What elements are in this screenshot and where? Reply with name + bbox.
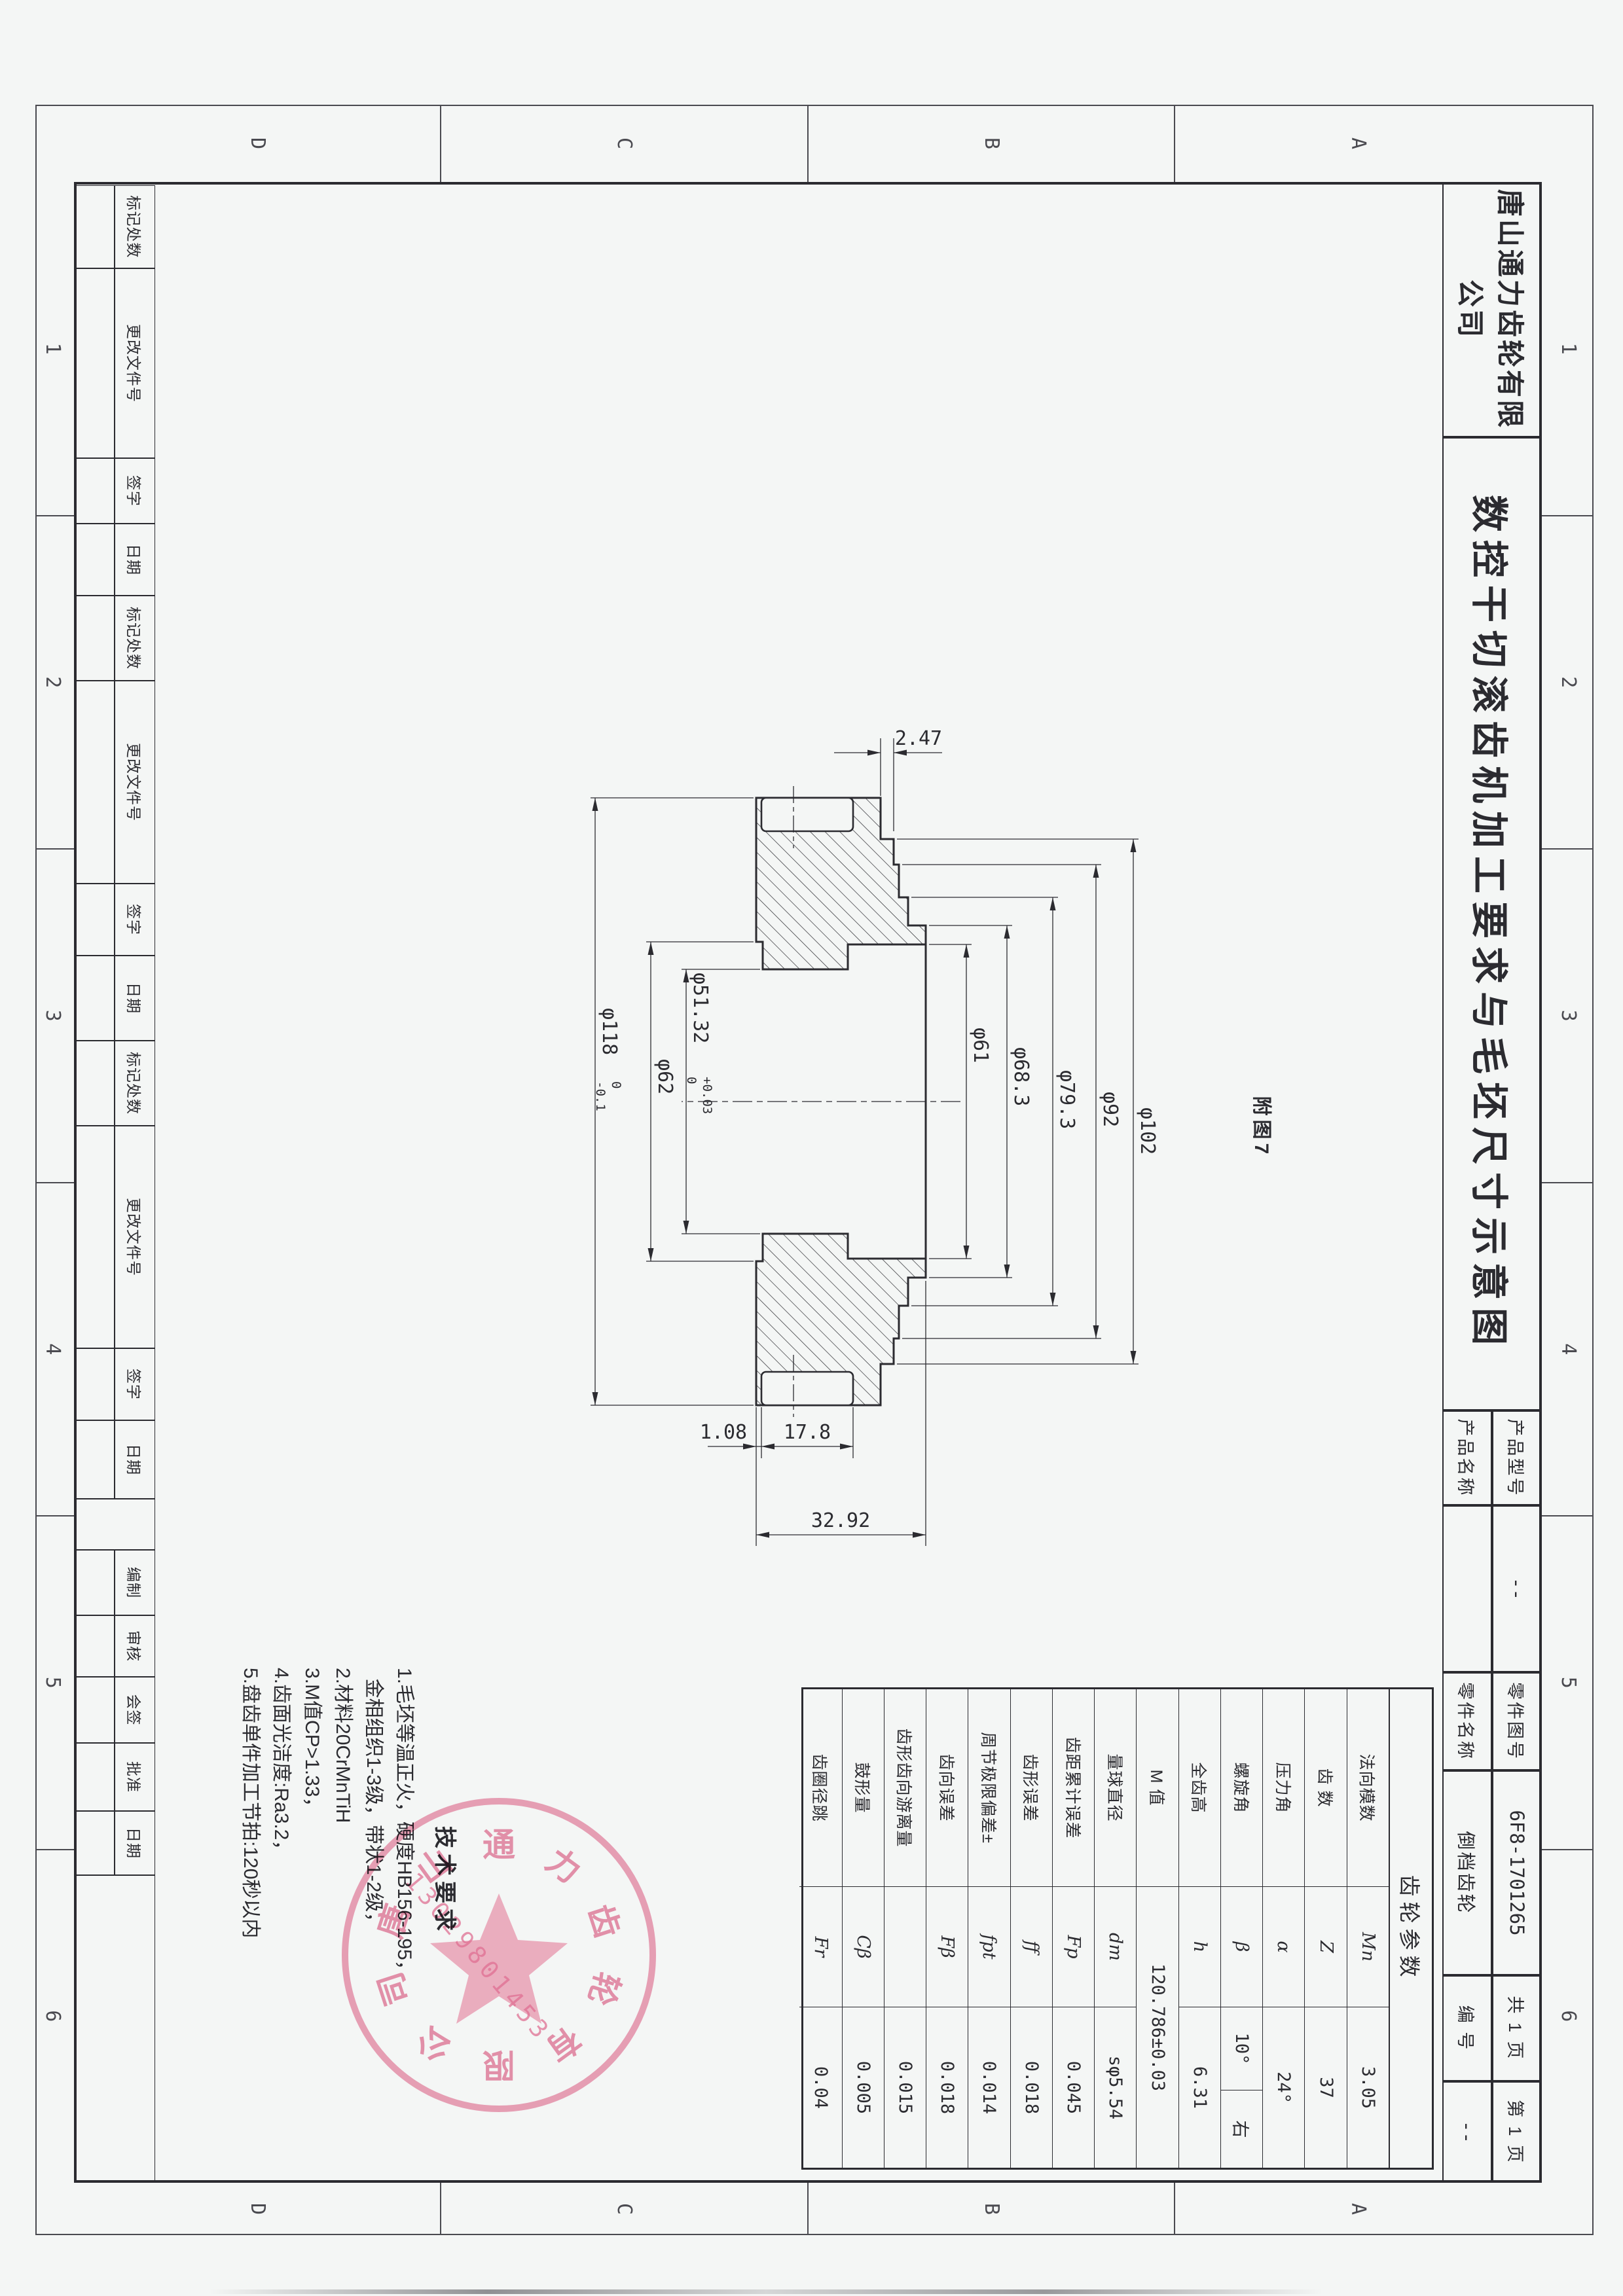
param-symbol: Fp	[1053, 1887, 1094, 2007]
param-symbol: fpt	[968, 1887, 1010, 2007]
zone-letter-right: C	[611, 2195, 638, 2223]
signature-label-cell: 批准	[115, 1743, 155, 1811]
param-name: 法向模数	[1347, 1689, 1389, 1887]
zone-tick-left	[807, 105, 809, 182]
zone-tick-top	[1542, 1182, 1594, 1183]
revision-label-cell: 标记处数	[115, 596, 155, 681]
revision-label-cell: 标记处数	[115, 1041, 155, 1126]
revision-label-cell: 更改文件号	[115, 1126, 155, 1348]
scan-edge-artifact	[210, 2289, 1322, 2294]
dimension-arrowhead	[964, 944, 970, 958]
dimension-arrowhead	[684, 1221, 689, 1234]
gear-param-row: 量球直径dmsφ5.54	[1094, 1689, 1136, 2168]
param-symbol: β	[1221, 1887, 1262, 2007]
gear-param-row: M 值120.786±0.03	[1136, 1689, 1178, 2168]
zone-number-bottom: 4	[40, 1335, 66, 1363]
gear-param-row: 全齿高h6.31	[1178, 1689, 1220, 2168]
param-name: 齿形误差	[1011, 1689, 1052, 1887]
gear-parameter-header: 齿轮参数	[1389, 1689, 1432, 2168]
dimension-arrowhead	[1131, 1351, 1137, 1364]
scanned-drawing-page: 唐山通力齿轮有限公司 数控干切滚齿机加工要求与毛坯尺寸示意图 产品型号 -- 零…	[0, 0, 1623, 2296]
revision-label-cell: 日期	[115, 524, 155, 596]
param-value: 120.786±0.03	[1137, 1887, 1178, 2168]
gear-param-row: 齿形齿向游离量0.015	[884, 1689, 926, 2168]
drawing-sheet: 唐山通力齿轮有限公司 数控干切滚齿机加工要求与毛坯尺寸示意图 产品型号 -- 零…	[0, 0, 1623, 2296]
param-symbol: ff	[1011, 1887, 1052, 2007]
zone-number-bottom: 6	[40, 2001, 66, 2030]
signature-label-cell: 编制	[115, 1550, 155, 1615]
zone-letter-left: C	[611, 129, 638, 158]
param-name: 齿距累计误差	[1053, 1689, 1094, 1887]
gear-param-row: 齿距累计误差Fp0.045	[1052, 1689, 1094, 2168]
strip-spacer-cell	[74, 1499, 155, 1550]
zone-tick-bottom	[35, 1515, 74, 1516]
revision-blank-cell	[74, 458, 115, 524]
zone-number-bottom: 3	[40, 1001, 66, 1030]
zone-tick-bottom	[35, 1849, 74, 1850]
param-name: 螺旋角	[1221, 1689, 1262, 1887]
param-symbol: Fr	[799, 1887, 841, 2007]
dimension-arrowhead	[1093, 865, 1099, 878]
revision-blank-cell	[74, 1126, 115, 1348]
revision-blank-cell	[74, 884, 115, 956]
zone-number-bottom: 1	[40, 334, 66, 363]
revision-blank-cell	[74, 1420, 115, 1499]
param-value: 0.005	[843, 2007, 884, 2168]
signature-blank-cell	[74, 1743, 115, 1811]
strip-tail-cell	[74, 1875, 155, 2183]
param-symbol: Fβ	[926, 1887, 968, 2007]
param-symbol: Cβ	[843, 1887, 884, 2007]
dimension-arrowhead	[964, 1246, 970, 1259]
zone-letter-right: D	[244, 2195, 270, 2223]
zone-tick-left	[441, 105, 442, 182]
zone-number-top: 5	[1556, 1668, 1582, 1697]
revision-blank-cell	[74, 268, 115, 458]
param-name: M 值	[1137, 1689, 1178, 1887]
signature-label-cell: 审核	[115, 1615, 155, 1677]
tech-requirement-line: 5.盘齿单件加工节拍:120秒以内	[235, 1668, 266, 1980]
gear-param-row: 周节极限偏差±fpt0.014	[968, 1689, 1010, 2168]
company-stamp: 唐山通力齿轮有限公司 13029801453	[342, 1798, 656, 2112]
dimension-arrowhead	[1093, 1325, 1099, 1338]
teeth-band-left	[761, 798, 853, 831]
gear-param-row: 法向模数Mn3.05	[1347, 1689, 1389, 2168]
param-symbol: α	[1263, 1887, 1304, 2007]
param-value: 24°	[1263, 2007, 1304, 2168]
zone-tick-bottom	[35, 515, 74, 516]
gear-parameter-table: 齿轮参数 法向模数Mn3.05齿 数Z37压力角α24°螺旋角β10°右全齿高h…	[801, 1687, 1434, 2170]
signature-label-cell: 会签	[115, 1677, 155, 1743]
dim-teeth-width: 17.8	[784, 1421, 831, 1444]
param-symbol: Mn	[1347, 1887, 1389, 2007]
dim-rim-step: 2.47	[895, 727, 942, 750]
dim-d118: φ118 0 -0.1	[593, 1008, 630, 1111]
dimension-arrowhead	[743, 1444, 756, 1450]
gear-param-row: 螺旋角β10°右	[1220, 1689, 1262, 2168]
gear-param-row: 齿圈径跳Fr0.04	[799, 1689, 841, 2168]
dim-d5132: φ51.32 +0.03 0	[684, 973, 721, 1126]
zone-tick-top	[1542, 515, 1594, 516]
param-symbol: dm	[1095, 1887, 1136, 2007]
zone-number-top: 6	[1556, 2001, 1582, 2030]
zone-letter-left: A	[1345, 129, 1372, 158]
dimension-arrowhead	[894, 750, 907, 756]
zone-number-bottom: 5	[40, 1668, 66, 1697]
figure-label: 附图7	[1250, 1096, 1272, 1158]
param-value-2: 右	[1221, 2090, 1262, 2168]
dimension-arrowhead	[593, 1392, 598, 1405]
dimension-arrowhead	[1131, 839, 1137, 852]
param-name: 齿向误差	[926, 1689, 968, 1887]
gear-param-row: 齿形误差ff0.018	[1010, 1689, 1052, 2168]
param-symbol: h	[1179, 1887, 1220, 2007]
dimension-arrowhead	[593, 798, 598, 811]
param-symbol: Z	[1305, 1887, 1346, 2007]
zone-tick-top	[1542, 1515, 1594, 1516]
param-value: sφ5.54	[1095, 2007, 1136, 2168]
param-name: 齿形齿向游离量	[884, 1689, 926, 1887]
revision-blank-cell	[74, 1348, 115, 1420]
zone-number-top: 1	[1556, 334, 1582, 363]
param-value: 0.018	[1011, 2007, 1052, 2168]
zone-letter-left: D	[244, 129, 270, 158]
tech-requirement-line: 4.齿面光洁度:Ra3.2，	[266, 1668, 297, 1980]
param-value: 0.04	[799, 2007, 841, 2168]
zone-letter-right: B	[978, 2195, 1004, 2223]
revision-blank-cell	[74, 681, 115, 884]
dim-d683: φ68.3	[1010, 1047, 1032, 1106]
dimension-arrowhead	[840, 1444, 853, 1450]
dimension-arrowhead	[761, 1444, 775, 1450]
teeth-band-right	[761, 1372, 853, 1405]
dim-d61: φ61	[969, 1028, 992, 1063]
dimension-arrowhead	[1004, 1265, 1010, 1278]
param-name: 压力角	[1263, 1689, 1304, 1887]
param-value: 3.05	[1347, 2007, 1389, 2168]
param-symbol	[884, 1887, 926, 2007]
signature-blank-cell	[74, 1550, 115, 1615]
param-value: 0.018	[926, 2007, 968, 2168]
param-value: 0.045	[1053, 2007, 1094, 2168]
zone-number-top: 2	[1556, 668, 1582, 696]
revision-label-cell: 日期	[115, 1420, 155, 1499]
revision-blank-cell	[74, 596, 115, 681]
param-name: 量球直径	[1095, 1689, 1136, 1887]
zone-number-bottom: 2	[40, 668, 66, 696]
param-value: 10°	[1221, 2007, 1262, 2090]
tech-requirement-line: 3.M值CP>1.33，	[297, 1668, 327, 1980]
zone-tick-bottom	[35, 848, 74, 850]
zone-letter-right: A	[1345, 2195, 1372, 2223]
dimension-arrowhead	[1050, 1293, 1056, 1306]
zone-tick-right	[441, 2183, 442, 2235]
revision-blank-cell	[74, 524, 115, 596]
param-name: 周节极限偏差±	[968, 1689, 1010, 1887]
signature-blank-cell	[74, 1677, 115, 1743]
gear-param-row: 压力角α24°	[1262, 1689, 1304, 2168]
gear-param-row: 齿 数Z37	[1304, 1689, 1346, 2168]
dim-d92: φ92	[1099, 1092, 1122, 1127]
gear-parameter-rows: 法向模数Mn3.05齿 数Z37压力角α24°螺旋角β10°右全齿高h6.31M…	[799, 1689, 1389, 2168]
stamp-ring-char: 通	[481, 1824, 517, 1861]
revision-label-cell: 日期	[115, 956, 155, 1041]
dimension-arrowhead	[756, 1532, 769, 1538]
param-name: 齿 数	[1305, 1689, 1346, 1887]
revision-blank-cell	[74, 185, 115, 268]
revision-label-cell: 更改文件号	[115, 681, 155, 884]
signature-blank-cell	[74, 1811, 115, 1875]
revision-label-cell: 签字	[115, 458, 155, 524]
signature-label-cell: 日期	[115, 1811, 155, 1875]
param-name: 鼓形量	[843, 1689, 884, 1887]
zone-tick-right	[1175, 2183, 1176, 2235]
gear-param-row: 齿向误差Fβ0.018	[926, 1689, 968, 2168]
zone-tick-left	[1175, 105, 1176, 182]
param-name: 全齿高	[1179, 1689, 1220, 1887]
dim-d102: φ102	[1136, 1107, 1159, 1155]
dimension-arrowhead	[867, 750, 881, 756]
stamp-ring-char: 限	[481, 2049, 517, 2086]
gear-param-row: 鼓形量Cβ0.005	[842, 1689, 884, 2168]
param-value: 0.015	[884, 2007, 926, 2168]
dimension-arrowhead	[1004, 925, 1010, 939]
revision-label-cell: 签字	[115, 1348, 155, 1420]
dimension-arrowhead	[913, 1532, 926, 1538]
zone-number-top: 3	[1556, 1001, 1582, 1030]
zone-letter-left: B	[978, 129, 1004, 158]
revision-label-cell: 更改文件号	[115, 268, 155, 458]
param-value: 6.31	[1179, 2007, 1220, 2168]
dimension-arrowhead	[648, 942, 654, 955]
param-value: 0.014	[968, 2007, 1010, 2168]
zone-number-top: 4	[1556, 1335, 1582, 1363]
signature-blank-cell	[74, 1615, 115, 1677]
param-name: 齿圈径跳	[799, 1689, 841, 1887]
dim-axial-total: 32.92	[811, 1509, 870, 1532]
dimension-arrowhead	[648, 1248, 654, 1261]
zone-tick-top	[1542, 848, 1594, 850]
revision-label-cell: 标记处数	[115, 185, 155, 268]
revision-label-cell: 签字	[115, 884, 155, 956]
dim-teeth-offset: 1.08	[700, 1421, 747, 1444]
zone-tick-right	[807, 2183, 809, 2235]
dimension-arrowhead	[1050, 897, 1056, 910]
dim-d793: φ79.3	[1055, 1070, 1078, 1129]
param-value: 37	[1305, 2007, 1346, 2168]
zone-tick-bottom	[35, 1182, 74, 1183]
zone-tick-top	[1542, 1849, 1594, 1850]
dim-d62: φ62	[653, 1059, 676, 1094]
revision-blank-cell	[74, 956, 115, 1041]
revision-blank-cell	[74, 1041, 115, 1126]
